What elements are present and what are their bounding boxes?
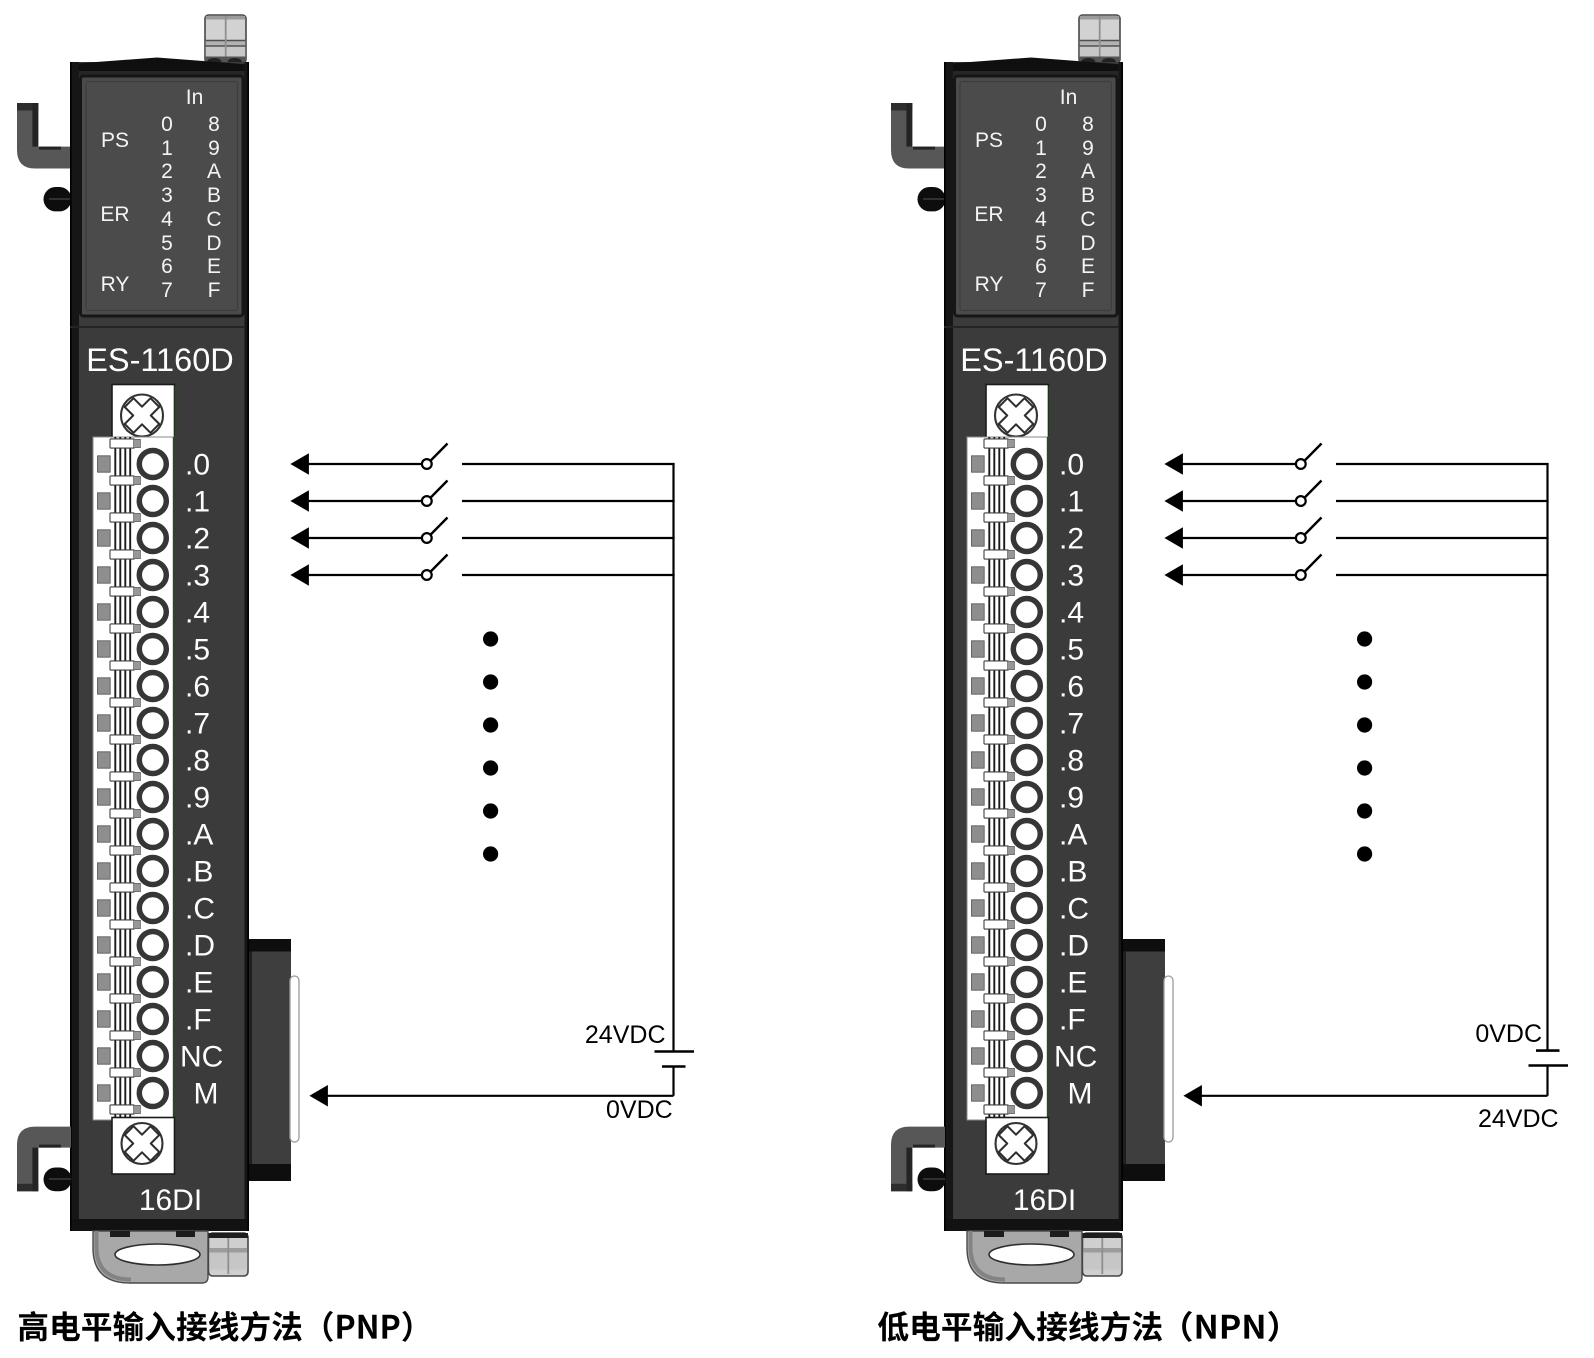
svg-text:F: F <box>1082 279 1095 302</box>
svg-text:A: A <box>207 160 221 183</box>
svg-text:1: 1 <box>161 137 173 160</box>
svg-text:.3: .3 <box>185 559 210 592</box>
svg-text:PS: PS <box>975 129 1003 152</box>
svg-text:.1: .1 <box>1059 485 1084 518</box>
svg-text:.7: .7 <box>1059 707 1084 740</box>
svg-text:.9: .9 <box>1059 781 1084 814</box>
svg-text:.5: .5 <box>185 633 210 666</box>
svg-text:16DI: 16DI <box>139 1184 202 1217</box>
svg-text:7: 7 <box>1035 279 1047 302</box>
svg-text:3: 3 <box>1035 184 1047 207</box>
svg-text:.D: .D <box>185 929 215 962</box>
svg-text:.C: .C <box>1059 892 1089 925</box>
svg-text:.9: .9 <box>185 781 210 814</box>
svg-text:.E: .E <box>185 966 213 999</box>
svg-text:C: C <box>1080 208 1095 231</box>
svg-text:8: 8 <box>208 113 220 136</box>
svg-text:In: In <box>1060 86 1078 109</box>
svg-text:0: 0 <box>1035 113 1047 136</box>
svg-text:24VDC: 24VDC <box>585 1021 666 1049</box>
svg-text:.7: .7 <box>185 707 210 740</box>
svg-text:B: B <box>1081 184 1095 207</box>
svg-text:M: M <box>1068 1077 1093 1110</box>
svg-text:.6: .6 <box>1059 670 1084 703</box>
svg-text:.0: .0 <box>1059 448 1084 481</box>
svg-text:0VDC: 0VDC <box>1475 1020 1542 1048</box>
svg-text:4: 4 <box>161 208 173 231</box>
svg-text:.A: .A <box>1059 818 1087 851</box>
svg-text:ER: ER <box>974 203 1003 226</box>
svg-text:E: E <box>1081 255 1095 278</box>
svg-text:E: E <box>207 255 221 278</box>
svg-text:2: 2 <box>161 160 173 183</box>
svg-text:.E: .E <box>1059 966 1087 999</box>
svg-text:.D: .D <box>1059 929 1089 962</box>
svg-text:.C: .C <box>185 892 215 925</box>
svg-text:D: D <box>206 232 221 255</box>
svg-text:.2: .2 <box>1059 522 1084 555</box>
svg-text:NC: NC <box>180 1040 223 1073</box>
svg-text:2: 2 <box>1035 160 1047 183</box>
svg-text:B: B <box>207 184 221 207</box>
svg-text:In: In <box>186 86 204 109</box>
svg-text:F: F <box>208 279 221 302</box>
svg-text:.A: .A <box>185 818 213 851</box>
svg-text:9: 9 <box>208 137 220 160</box>
svg-text:9: 9 <box>1082 137 1094 160</box>
svg-text:RY: RY <box>101 273 130 296</box>
svg-text:1: 1 <box>1035 137 1047 160</box>
svg-text:6: 6 <box>161 255 173 278</box>
svg-text:D: D <box>1080 232 1095 255</box>
svg-text:0: 0 <box>161 113 173 136</box>
svg-text:C: C <box>206 208 221 231</box>
svg-text:.4: .4 <box>185 596 210 629</box>
svg-text:.1: .1 <box>185 485 210 518</box>
svg-text:5: 5 <box>1035 232 1047 255</box>
svg-text:.3: .3 <box>1059 559 1084 592</box>
svg-text:3: 3 <box>161 184 173 207</box>
svg-text:.F: .F <box>185 1003 212 1036</box>
svg-text:.0: .0 <box>185 448 210 481</box>
svg-text:ER: ER <box>100 203 129 226</box>
svg-text:A: A <box>1081 160 1095 183</box>
svg-text:24VDC: 24VDC <box>1478 1105 1559 1133</box>
svg-text:.2: .2 <box>185 522 210 555</box>
svg-text:.B: .B <box>1059 855 1087 888</box>
svg-text:.5: .5 <box>1059 633 1084 666</box>
svg-text:ES-1160D: ES-1160D <box>960 342 1108 378</box>
svg-text:4: 4 <box>1035 208 1047 231</box>
svg-text:0VDC: 0VDC <box>606 1096 673 1124</box>
svg-text:.8: .8 <box>185 744 210 777</box>
svg-text:.4: .4 <box>1059 596 1084 629</box>
svg-text:6: 6 <box>1035 255 1047 278</box>
svg-text:M: M <box>194 1077 219 1110</box>
svg-text:8: 8 <box>1082 113 1094 136</box>
svg-text:.6: .6 <box>185 670 210 703</box>
svg-text:RY: RY <box>975 273 1004 296</box>
svg-text:.8: .8 <box>1059 744 1084 777</box>
svg-text:16DI: 16DI <box>1013 1184 1076 1217</box>
svg-text:7: 7 <box>161 279 173 302</box>
svg-text:.B: .B <box>185 855 213 888</box>
svg-text:.F: .F <box>1059 1003 1086 1036</box>
svg-text:5: 5 <box>161 232 173 255</box>
svg-text:PS: PS <box>101 129 129 152</box>
svg-text:NC: NC <box>1054 1040 1097 1073</box>
svg-text:ES-1160D: ES-1160D <box>86 342 234 378</box>
